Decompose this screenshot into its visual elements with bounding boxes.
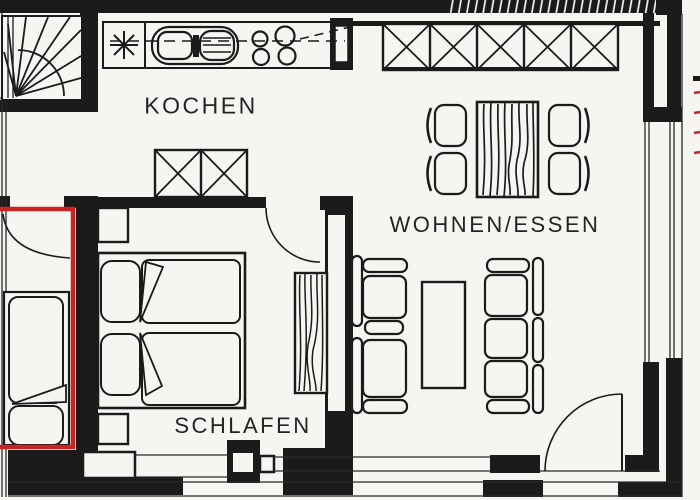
- staircase-icon: [2, 16, 82, 100]
- room-label-kochen: KOCHEN: [144, 93, 257, 120]
- door-swing-icon: [545, 394, 622, 471]
- chair-icon: [549, 153, 589, 194]
- nightstand-icon: [98, 208, 128, 242]
- scan-edge-marks: [693, 76, 700, 153]
- single-bed-icon: [4, 292, 69, 445]
- sofa-3seat-icon: [485, 258, 543, 413]
- sofa-2seat-icon: [352, 256, 407, 413]
- wardrobe-x-icon: [383, 24, 618, 71]
- room-label-wohnen-essen: WOHNEN/ESSEN: [390, 212, 601, 238]
- coffee-table-icon: [422, 282, 465, 388]
- dining-table-icon: [477, 102, 538, 197]
- double-bed-icon: [98, 253, 245, 408]
- nightstand-icon: [98, 414, 128, 444]
- star-appliance-icon: [110, 31, 138, 59]
- floor-plan: KOCHEN WOHNEN/ESSEN SCHLAFEN: [0, 0, 700, 500]
- room-label-schlafen: SCHLAFEN: [174, 413, 311, 439]
- chair-icon: [428, 153, 467, 194]
- chair-icon: [428, 105, 467, 146]
- door-swing-icon: [266, 208, 320, 262]
- door-swing-icon: [3, 214, 70, 258]
- wardrobe-woodgrain-icon: [295, 273, 327, 393]
- chair-icon: [549, 105, 589, 146]
- cabinet-x-icon: [155, 150, 247, 197]
- floor-plan-drawing: [0, 0, 700, 500]
